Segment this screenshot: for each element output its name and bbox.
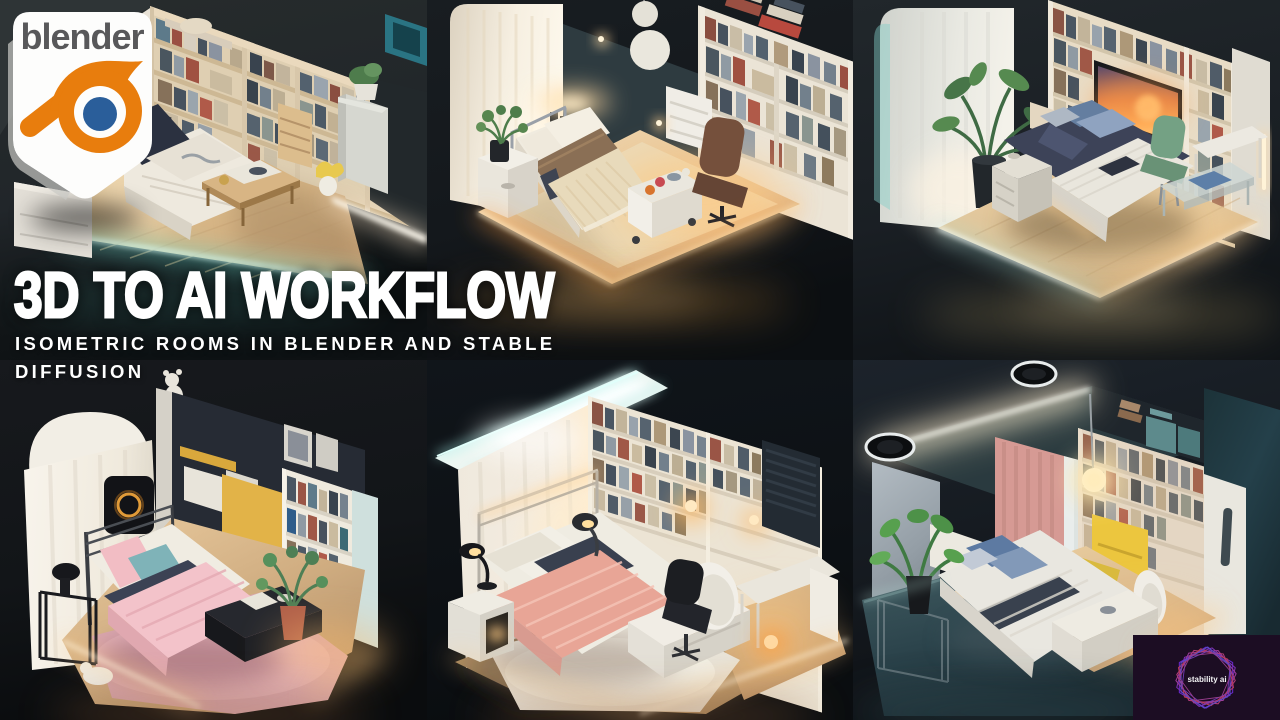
svg-text:stability ai: stability ai [1187,675,1226,684]
svg-text:blender: blender [20,16,144,57]
